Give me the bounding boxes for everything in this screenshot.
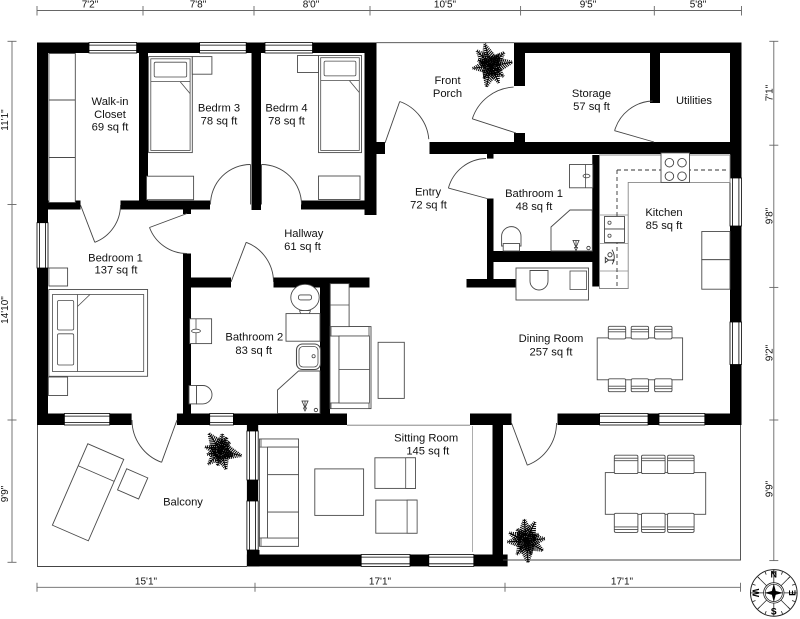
svg-text:Porch: Porch: [433, 88, 462, 100]
svg-text:17'1": 17'1": [611, 577, 634, 588]
svg-text:Front: Front: [434, 75, 461, 87]
svg-text:Bedrm 3: Bedrm 3: [198, 103, 240, 115]
svg-text:48 sq ft: 48 sq ft: [516, 201, 554, 213]
svg-text:72 sq ft: 72 sq ft: [410, 200, 448, 212]
svg-text:Kitchen: Kitchen: [645, 207, 682, 219]
svg-text:Utilities: Utilities: [676, 95, 712, 107]
svg-text:83 sq ft: 83 sq ft: [235, 345, 273, 357]
svg-text:9'9": 9'9": [0, 485, 11, 502]
svg-text:Bedrm 4: Bedrm 4: [265, 103, 307, 115]
svg-text:78 sq ft: 78 sq ft: [268, 116, 306, 128]
svg-text:257 sq ft: 257 sq ft: [530, 346, 574, 358]
svg-text:Storage: Storage: [572, 88, 611, 100]
svg-text:9'8": 9'8": [765, 207, 776, 224]
svg-text:61 sq ft: 61 sq ft: [284, 241, 322, 253]
svg-text:8'0": 8'0": [303, 0, 320, 11]
svg-text:78 sq ft: 78 sq ft: [201, 116, 239, 128]
svg-text:57 sq ft: 57 sq ft: [573, 101, 611, 113]
svg-text:Bedroom 1: Bedroom 1: [88, 253, 143, 265]
svg-text:5'8": 5'8": [690, 0, 707, 11]
svg-text:7'8": 7'8": [190, 0, 207, 11]
svg-text:85 sq ft: 85 sq ft: [646, 220, 684, 232]
svg-text:15'1": 15'1": [135, 577, 158, 588]
svg-text:S: S: [771, 607, 777, 617]
svg-text:Closet: Closet: [94, 109, 127, 121]
svg-text:Bathroom 2: Bathroom 2: [225, 332, 283, 344]
svg-text:N: N: [771, 570, 778, 580]
svg-text:69 sq ft: 69 sq ft: [92, 122, 130, 134]
svg-text:9'5": 9'5": [580, 0, 597, 11]
svg-text:9'2": 9'2": [765, 344, 776, 361]
svg-text:W: W: [750, 589, 760, 598]
svg-text:137 sq ft: 137 sq ft: [95, 265, 139, 277]
svg-text:Balcony: Balcony: [163, 497, 203, 509]
svg-text:10'5": 10'5": [434, 0, 457, 11]
svg-text:Sitting Room: Sitting Room: [394, 432, 458, 444]
svg-text:17'1": 17'1": [369, 577, 392, 588]
svg-text:E: E: [787, 590, 797, 596]
svg-text:Bathroom 1: Bathroom 1: [505, 188, 563, 200]
svg-text:Walk-in: Walk-in: [92, 96, 129, 108]
svg-text:11'1": 11'1": [0, 109, 11, 131]
svg-text:9'9": 9'9": [765, 480, 776, 497]
svg-text:Hallway: Hallway: [284, 228, 324, 240]
svg-text:7'1": 7'1": [765, 84, 776, 101]
svg-text:145 sq ft: 145 sq ft: [406, 445, 450, 457]
svg-text:Dining Room: Dining Room: [519, 333, 584, 345]
svg-text:7'2": 7'2": [82, 0, 99, 11]
svg-text:14'10": 14'10": [0, 296, 11, 324]
svg-text:Entry: Entry: [415, 187, 442, 199]
